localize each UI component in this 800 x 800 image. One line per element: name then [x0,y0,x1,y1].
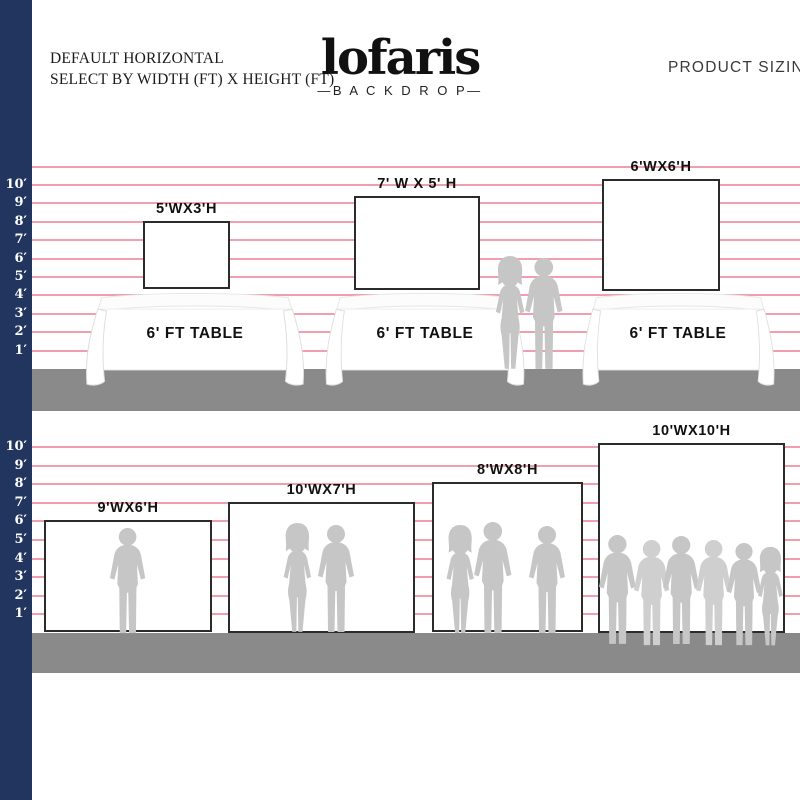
man-silhouette-icon [106,527,149,637]
brand-logo: lofaris —B A C K D R O P— [317,34,482,98]
man-silhouette-icon [525,525,569,637]
sizing-diagram: 10′9′8′7′6′5′4′3′2′1′5'WX3'H7' W X 5' H6… [0,0,800,800]
ruler-label-tables-row-7ft: 7′ [0,232,32,248]
backdrop-5wx3h [143,221,230,289]
ruler-label-tables-row-5ft: 5′ [0,269,32,285]
woman-silhouette-icon [752,546,789,649]
ruler-label-backdrops-row-8ft: 8′ [0,476,32,492]
ruler-label-backdrops-row-1ft: 1′ [0,606,32,622]
ruler-label-backdrops-row-4ft: 4′ [0,551,32,567]
woman-silhouette-icon [277,522,318,636]
ruler-bar [0,0,32,800]
ruler-label-backdrops-row-3ft: 3′ [0,569,32,585]
brand-name: lofaris [317,34,482,82]
ruler-label-backdrops-row-2ft: 2′ [0,588,32,604]
ruler-label-backdrops-row-6ft: 6′ [0,513,32,529]
backdrop-label-10wx10h: 10'WX10'H [652,423,730,439]
subtitle-line1: DEFAULT HORIZONTAL [50,48,334,69]
subtitle-line2: SELECT BY WIDTH (FT) X HEIGHT (FT) [50,69,334,90]
backdrop-label-10wx7h: 10'WX7'H [287,482,357,498]
ruler-label-tables-row-8ft: 8′ [0,214,32,230]
ruler-label-backdrops-row-7ft: 7′ [0,495,32,511]
man-silhouette-icon [314,524,358,636]
subtitle: DEFAULT HORIZONTAL SELECT BY WIDTH (FT) … [50,48,334,90]
backdrop-label-7-w-x-5-h: 7' W X 5' H [377,176,457,192]
ruler-label-tables-row-2ft: 2′ [0,324,32,340]
backdrop-label-5wx3h: 5'WX3'H [156,201,217,217]
ruler-label-tables-row-10ft: 10′ [0,177,32,193]
man-silhouette-icon [521,257,567,373]
ruler-label-tables-row-6ft: 6′ [0,251,32,267]
ruler-label-backdrops-row-9ft: 9′ [0,458,32,474]
ruler-label-tables-row-9ft: 9′ [0,195,32,211]
backdrop-label-6wx6h: 6'WX6'H [630,159,691,175]
table-label-tables-row-1: 6' FT TABLE [147,325,244,343]
backdrop-7-w-x-5-h [354,196,480,290]
ruler-label-tables-row-1ft: 1′ [0,343,32,359]
ruler-label-tables-row-3ft: 3′ [0,306,32,322]
ruler-label-backdrops-row-5ft: 5′ [0,532,32,548]
backdrop-label-9wx6h: 9'WX6'H [97,500,158,516]
backdrop-label-8wx8h: 8'WX8'H [477,462,538,478]
table-label-tables-row-3: 6' FT TABLE [630,325,727,343]
table-label-tables-row-2: 6' FT TABLE [377,325,474,343]
man-silhouette-icon [470,521,516,637]
backdrop-6wx6h [602,179,720,291]
ruler-label-backdrops-row-10ft: 10′ [0,439,32,455]
page-title: PRODUCT SIZING [668,59,800,77]
brand-tagline: —B A C K D R O P— [317,83,482,98]
ruler-label-tables-row-4ft: 4′ [0,287,32,303]
